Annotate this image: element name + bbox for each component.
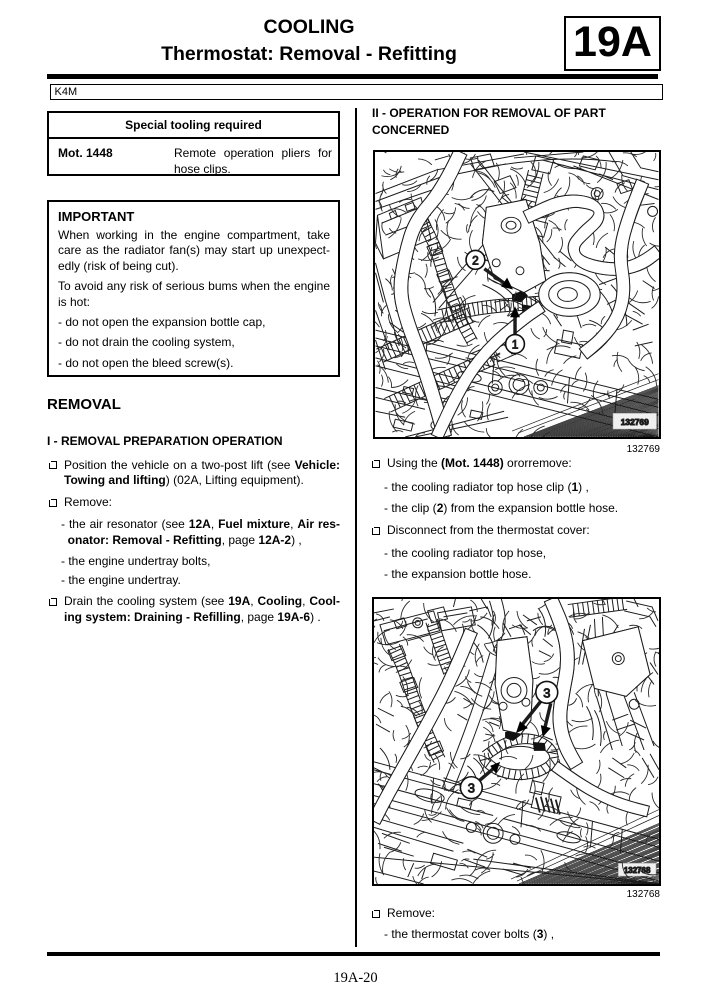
svg-text:1: 1 <box>511 337 518 351</box>
svg-text:3: 3 <box>543 685 550 700</box>
svg-text:2: 2 <box>472 253 479 267</box>
svg-text:3: 3 <box>467 781 474 796</box>
svg-text:132769: 132769 <box>620 417 648 427</box>
